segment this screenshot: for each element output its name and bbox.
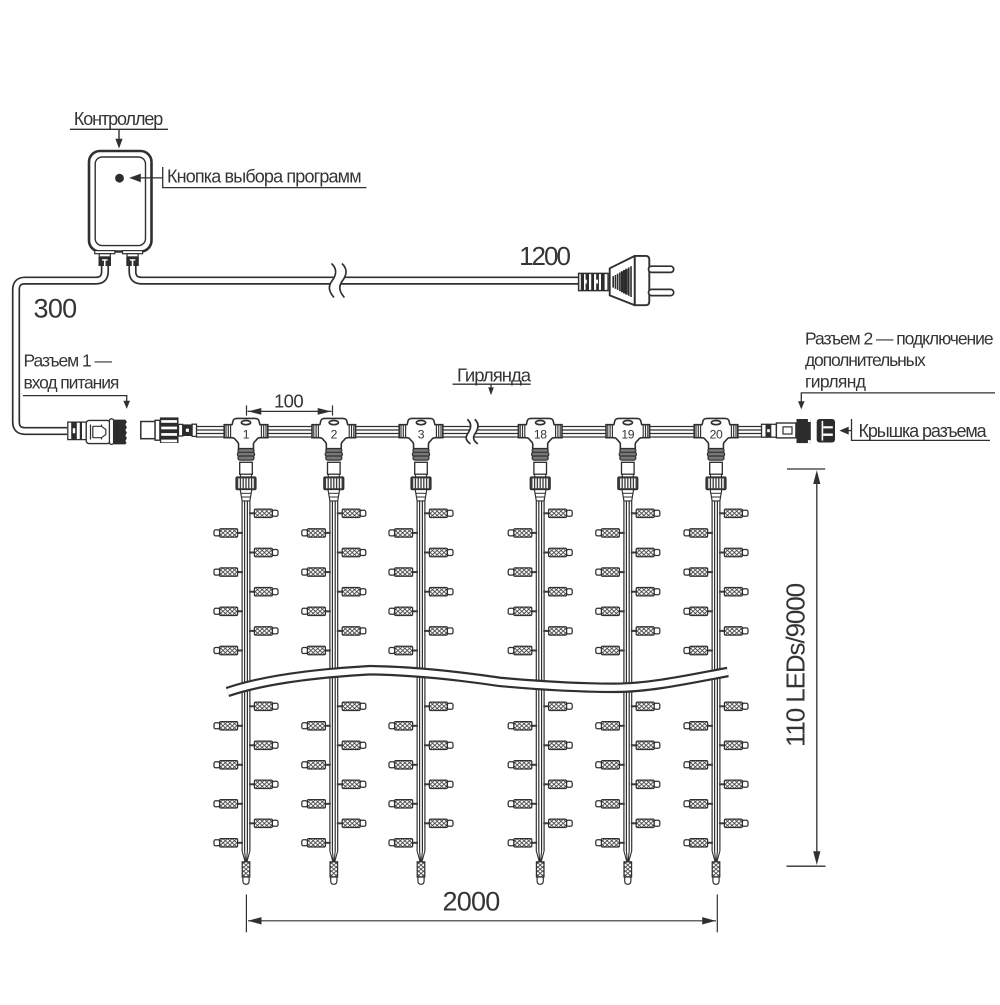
svg-text:3: 3 xyxy=(418,427,425,441)
svg-text:300: 300 xyxy=(34,294,77,324)
svg-text:1200: 1200 xyxy=(519,241,570,271)
svg-text:18: 18 xyxy=(534,427,547,441)
svg-text:гирлянд: гирлянд xyxy=(805,371,866,391)
svg-text:Разъем 1 —: Разъем 1 — xyxy=(24,351,113,371)
svg-text:Разъем 2 — подключение: Разъем 2 — подключение xyxy=(805,328,993,348)
svg-text:110 LEDs/9000: 110 LEDs/9000 xyxy=(781,583,811,747)
svg-text:Контроллер: Контроллер xyxy=(74,109,163,129)
svg-text:19: 19 xyxy=(621,427,634,441)
svg-text:2000: 2000 xyxy=(442,886,499,916)
svg-text:20: 20 xyxy=(710,427,723,441)
svg-text:Кнопка выбора программ: Кнопка выбора программ xyxy=(167,166,361,186)
svg-text:2: 2 xyxy=(331,427,338,441)
svg-text:дополнительных: дополнительных xyxy=(805,350,926,370)
svg-text:100: 100 xyxy=(274,391,303,412)
svg-text:1: 1 xyxy=(243,427,250,441)
svg-text:вход питания: вход питания xyxy=(24,372,119,392)
svg-text:Крышка разъема: Крышка разъема xyxy=(859,421,988,441)
svg-text:Гирлянда: Гирлянда xyxy=(457,365,532,386)
